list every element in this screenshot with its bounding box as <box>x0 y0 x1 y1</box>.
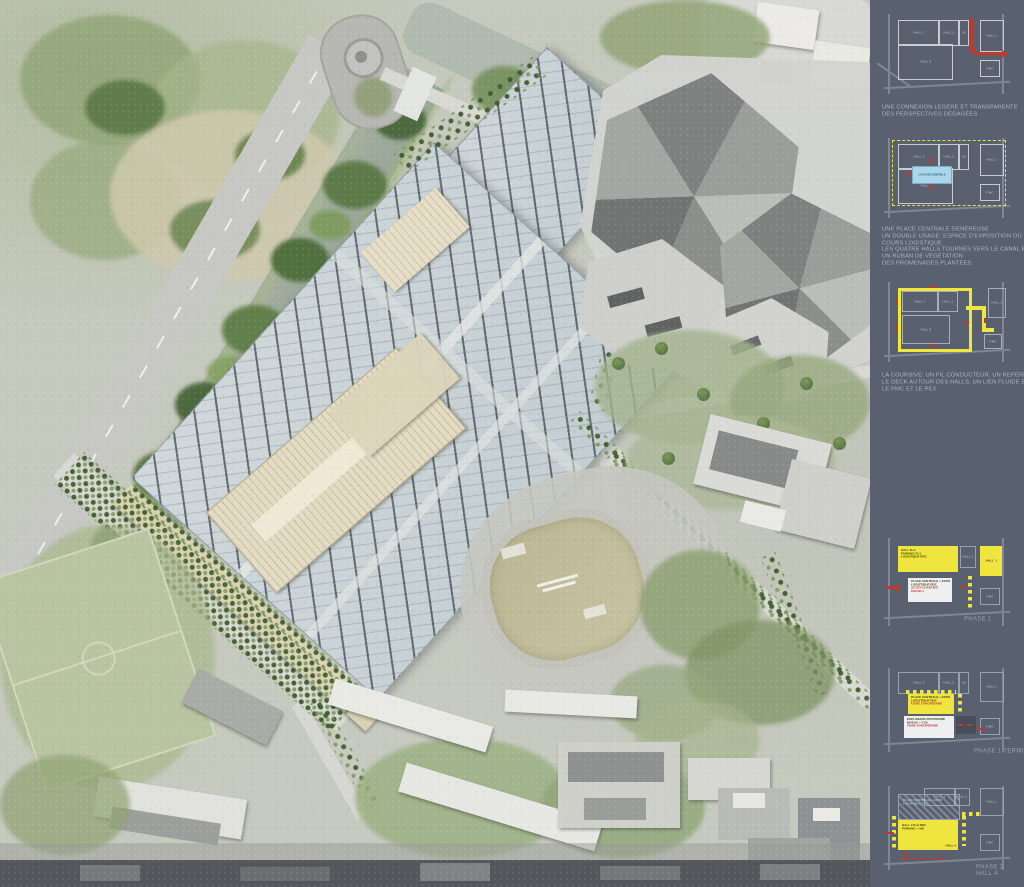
hall-3-outline: HALL 3 <box>898 20 940 46</box>
panel-connexion: HALL 3 HALL 2 A2 HALL 4 HALL 1 PMC UNE C… <box>870 6 1024 128</box>
phase-label: PHASE 1 TERMINÉE <box>974 748 1024 755</box>
concept-diagram-sidebar: HALL 3 HALL 2 A2 HALL 4 HALL 1 PMC UNE C… <box>870 0 1024 887</box>
skylight-slit <box>607 287 645 308</box>
building <box>813 808 840 821</box>
street-line <box>888 786 890 870</box>
hall-4-outline: HALL 4 <box>898 44 953 80</box>
coursive-tick <box>964 322 969 324</box>
pmc-outline: PMC <box>980 834 1000 851</box>
place-centrale-block: PLACE CENTRALE + EXPO LOGISTIQUE RDC FOI… <box>908 694 954 714</box>
phase1-place-block: PLACE CENTRALE + EXPO LOGISTIQUE RDC ACC… <box>908 578 952 602</box>
access-arrow <box>930 158 932 164</box>
construction-fence-dotted <box>962 816 966 846</box>
hall-a2-outline: A2 <box>958 144 969 170</box>
tree <box>662 452 675 465</box>
site-access-arrow <box>886 586 896 589</box>
arrowhead-icon <box>1002 50 1008 58</box>
construction-fence-dotted <box>958 694 962 714</box>
street-line <box>888 668 890 752</box>
hall-1-outline: HALL 1 <box>980 788 1004 816</box>
coursive-tick <box>930 344 935 346</box>
hall-3-outline: HALL 3 <box>902 291 938 312</box>
building-complex <box>558 742 680 828</box>
dark-roof <box>568 752 664 782</box>
street-line <box>888 538 890 626</box>
phasing-diagram: HALL 3 HALL 2 A2 HALL 1 PLACE CENTRALE +… <box>884 668 1010 756</box>
aerial-masterplan-view <box>0 0 870 887</box>
tree-cluster <box>85 80 165 135</box>
dark-roof-band <box>0 860 870 887</box>
site-access-mark <box>886 832 894 834</box>
place-centrale-hatched: PLACE CENTRALE + EXPO LOGISTIQUE RDC <box>898 794 960 820</box>
hall-2-outline: HALL 2 <box>938 291 958 312</box>
access-arrow <box>906 173 912 175</box>
tree-cluster <box>323 161 387 209</box>
panel-phase-1: HALL R+2 PARKING R+1 LOGISTIQUE RDC HALL… <box>870 528 1024 654</box>
field-circle <box>77 637 120 680</box>
dark-roof <box>584 798 646 820</box>
construction-fence-dotted <box>968 576 972 610</box>
caption: UNE PLACE CENTRALE GÉNÉREUSE UN DOUBLE U… <box>882 226 1024 267</box>
tree <box>800 377 813 390</box>
coursive-tick <box>984 318 986 323</box>
tree <box>612 357 625 370</box>
site-access-mark <box>906 852 908 858</box>
coursive-tick <box>930 286 935 288</box>
rooftop <box>240 867 330 881</box>
pmc-outline: PMC <box>980 60 1000 77</box>
panel-phase-1-terminee: HALL 3 HALL 2 A2 HALL 1 PLACE CENTRALE +… <box>870 660 1024 778</box>
hall-2-outline: HALL 2 <box>960 546 976 568</box>
rooftop <box>80 865 140 881</box>
building <box>775 459 870 549</box>
hall-1-outline: HALL 1 <box>980 144 1004 176</box>
site-diagram: HALL 3 HALL 2 HALL 4 HALL 1 PMC <box>884 282 1010 366</box>
masterplan-board: HALL 3 HALL 2 A2 HALL 4 HALL 1 PMC UNE C… <box>0 0 1024 887</box>
connection-arrow <box>974 52 1002 55</box>
street-line <box>888 14 890 94</box>
connection-arrow <box>970 18 973 48</box>
pmc-outline: PMC <box>980 184 1000 201</box>
tree <box>697 388 710 401</box>
caption: UNE CONNEXION LÉGÈRE ET TRANSPARENTE DES… <box>882 104 1018 118</box>
phase-label: PHASE 2 HALL 4 <box>976 864 1004 878</box>
access-arrow <box>930 184 932 190</box>
caption: LA COURSIVE: UN FIL CONDUCTEUR, UN REPÈR… <box>882 372 1024 393</box>
pmc-outline: PMC <box>980 718 1000 735</box>
site-diagram: HALL 3 HALL 2 A2 HALL 4 HALL 1 PMC <box>884 14 1010 98</box>
site-access-mark <box>960 586 966 588</box>
place-centrale-block: LA PLACE CENTRALE <box>912 166 952 184</box>
dark-roof <box>709 430 798 489</box>
hall-1-outline: HALL 1 <box>980 672 1004 702</box>
hall-1-outline: HALL 1 <box>988 288 1006 318</box>
rooftop <box>600 866 680 880</box>
pmc-outline: PMC <box>984 334 1002 349</box>
hall-1-outline: HALL 1 <box>980 20 1004 52</box>
tree <box>833 437 846 450</box>
construction-fence-dotted <box>906 690 956 694</box>
hall-4-outline: HALL 4 <box>902 315 950 344</box>
hall-2-outline: HALL 2 <box>938 20 960 46</box>
rooftop <box>760 864 820 880</box>
phase1-hall-block: HALL R+2 PARKING R+1 LOGISTIQUE RDC <box>898 546 958 572</box>
tree-cluster <box>309 210 351 240</box>
hall-a2-outline: A2 <box>958 20 969 46</box>
phase-label: PHASE 1 <box>964 616 992 623</box>
panel-place-centrale: HALL 3 HALL 2 A2 HALL 4 HALL 1 PMC LA PL… <box>870 130 1024 270</box>
rooftop <box>420 863 490 881</box>
street-band <box>0 843 870 861</box>
construction-fence-dotted <box>962 812 980 816</box>
panel-coursive: HALL 3 HALL 2 HALL 4 HALL 1 PMC LA COURS… <box>870 272 1024 394</box>
field-marking <box>583 604 607 619</box>
arrowhead-icon <box>896 584 901 592</box>
coursive-tick <box>896 300 898 305</box>
phasing-diagram: HALL 3 HALL 2 HALL 1 PLACE CENTRALE + EX… <box>884 786 1010 870</box>
tree <box>655 342 668 355</box>
tree-cluster <box>0 755 130 855</box>
red-dashed-limit <box>902 858 946 860</box>
panel-phase-2-hall-4: HALL 3 HALL 2 HALL 1 PLACE CENTRALE + EX… <box>870 780 1024 887</box>
red-dashed-limit <box>958 724 974 726</box>
street-line <box>1002 538 1004 626</box>
coursive-link <box>966 306 982 310</box>
building <box>733 793 765 808</box>
site-diagram: HALL 3 HALL 2 A2 HALL 4 HALL 1 PMC LA PL… <box>884 138 1010 222</box>
hall-a2-outline: A2 <box>958 672 969 694</box>
street-line <box>888 138 890 218</box>
pmc-outline: PMC <box>980 588 1000 605</box>
phase2-hall4-block: HALL 4 R+2 RDC PARKING + 330 HALL 4 <box>898 820 958 850</box>
coursive-tick <box>896 326 898 331</box>
field-marking <box>500 543 526 560</box>
phase1-hall1-block: HALL 1 <box>980 546 1002 576</box>
esplanade-block: ESPLANADE PROVISOIRE NIVEAU + 7,50 FOIRE… <box>904 716 954 738</box>
coursive-link <box>982 328 994 332</box>
street-line <box>888 282 890 362</box>
